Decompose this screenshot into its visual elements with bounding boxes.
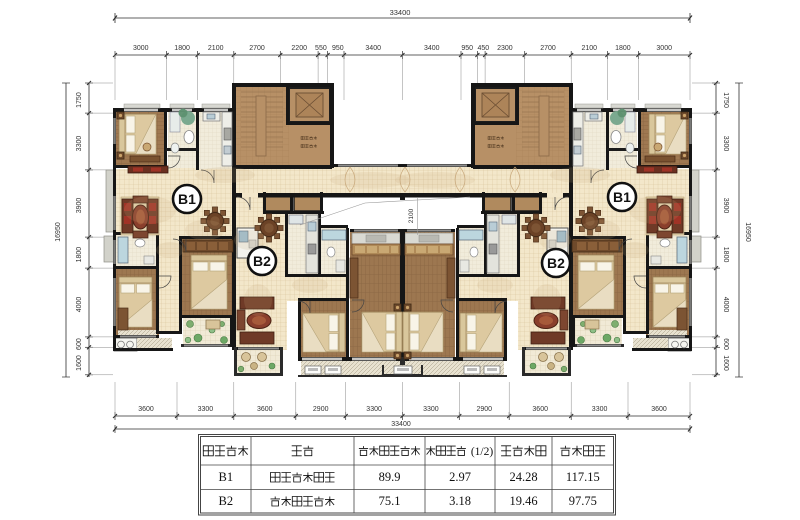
svg-text:2700: 2700	[540, 45, 556, 52]
svg-text:1750: 1750	[722, 92, 729, 108]
svg-text:1800: 1800	[615, 45, 631, 52]
svg-text:1750: 1750	[76, 92, 83, 108]
svg-text:B2: B2	[219, 494, 234, 508]
svg-text:B1: B1	[178, 191, 196, 207]
svg-text:2900: 2900	[313, 406, 329, 413]
svg-text:B1: B1	[613, 189, 631, 205]
svg-text:2900: 2900	[477, 406, 493, 413]
svg-text:4000: 4000	[76, 297, 83, 313]
svg-text:33400: 33400	[390, 8, 411, 17]
svg-text:550: 550	[315, 45, 327, 52]
svg-text:3900: 3900	[76, 198, 83, 214]
svg-text:3300: 3300	[592, 406, 608, 413]
svg-text:(1/2): (1/2)	[471, 446, 494, 458]
svg-text:950: 950	[461, 45, 473, 52]
svg-text:2.97: 2.97	[449, 470, 471, 484]
svg-text:3300: 3300	[366, 406, 382, 413]
svg-text:3900: 3900	[722, 198, 729, 214]
svg-text:33400: 33400	[391, 421, 411, 428]
svg-text:16950: 16950	[744, 222, 751, 242]
svg-text:3300: 3300	[722, 136, 729, 152]
svg-text:600: 600	[722, 338, 729, 350]
svg-text:950: 950	[332, 45, 344, 52]
svg-text:75.1: 75.1	[379, 494, 401, 508]
svg-text:3600: 3600	[138, 406, 154, 413]
svg-text:450: 450	[477, 45, 489, 52]
svg-text:2300: 2300	[497, 45, 513, 52]
svg-text:4000: 4000	[722, 297, 729, 313]
svg-text:1800: 1800	[722, 247, 729, 263]
svg-text:B1: B1	[219, 470, 234, 484]
svg-text:2100: 2100	[408, 208, 415, 223]
svg-text:3300: 3300	[423, 406, 439, 413]
svg-text:24.28: 24.28	[509, 470, 537, 484]
svg-text:19.46: 19.46	[509, 494, 537, 508]
svg-text:3000: 3000	[656, 45, 672, 52]
svg-text:1600: 1600	[76, 355, 83, 371]
svg-text:16950: 16950	[55, 222, 62, 242]
svg-text:2200: 2200	[291, 45, 307, 52]
svg-text:2100: 2100	[208, 45, 224, 52]
svg-text:3400: 3400	[424, 45, 440, 52]
svg-text:3.18: 3.18	[449, 494, 471, 508]
svg-text:1800: 1800	[174, 45, 190, 52]
svg-text:3300: 3300	[76, 136, 83, 152]
svg-text:1600: 1600	[722, 355, 729, 371]
svg-text:117.15: 117.15	[566, 470, 600, 484]
svg-text:3600: 3600	[651, 406, 667, 413]
svg-text:B2: B2	[253, 253, 271, 269]
svg-text:2100: 2100	[582, 45, 598, 52]
svg-text:600: 600	[76, 338, 83, 350]
svg-text:B2: B2	[547, 255, 565, 271]
svg-text:3400: 3400	[365, 45, 381, 52]
svg-text:3300: 3300	[198, 406, 214, 413]
svg-text:97.75: 97.75	[569, 494, 597, 508]
svg-text:3000: 3000	[133, 45, 149, 52]
svg-text:2700: 2700	[249, 45, 265, 52]
svg-text:3600: 3600	[532, 406, 548, 413]
svg-text:1800: 1800	[76, 247, 83, 263]
svg-text:3600: 3600	[257, 406, 273, 413]
svg-text:89.9: 89.9	[379, 470, 401, 484]
